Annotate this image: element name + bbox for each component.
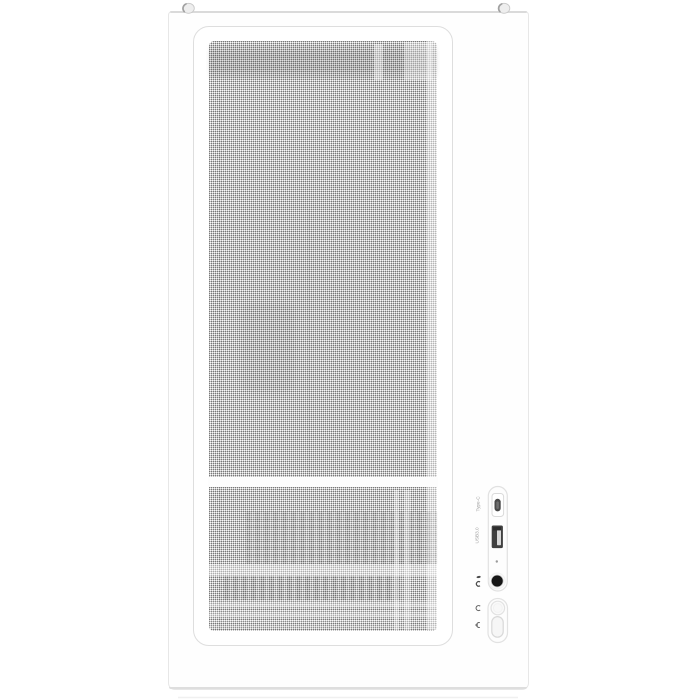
svg-text:USB3.0: USB3.0 — [475, 527, 480, 544]
svg-text:Type-C: Type-C — [476, 496, 481, 512]
